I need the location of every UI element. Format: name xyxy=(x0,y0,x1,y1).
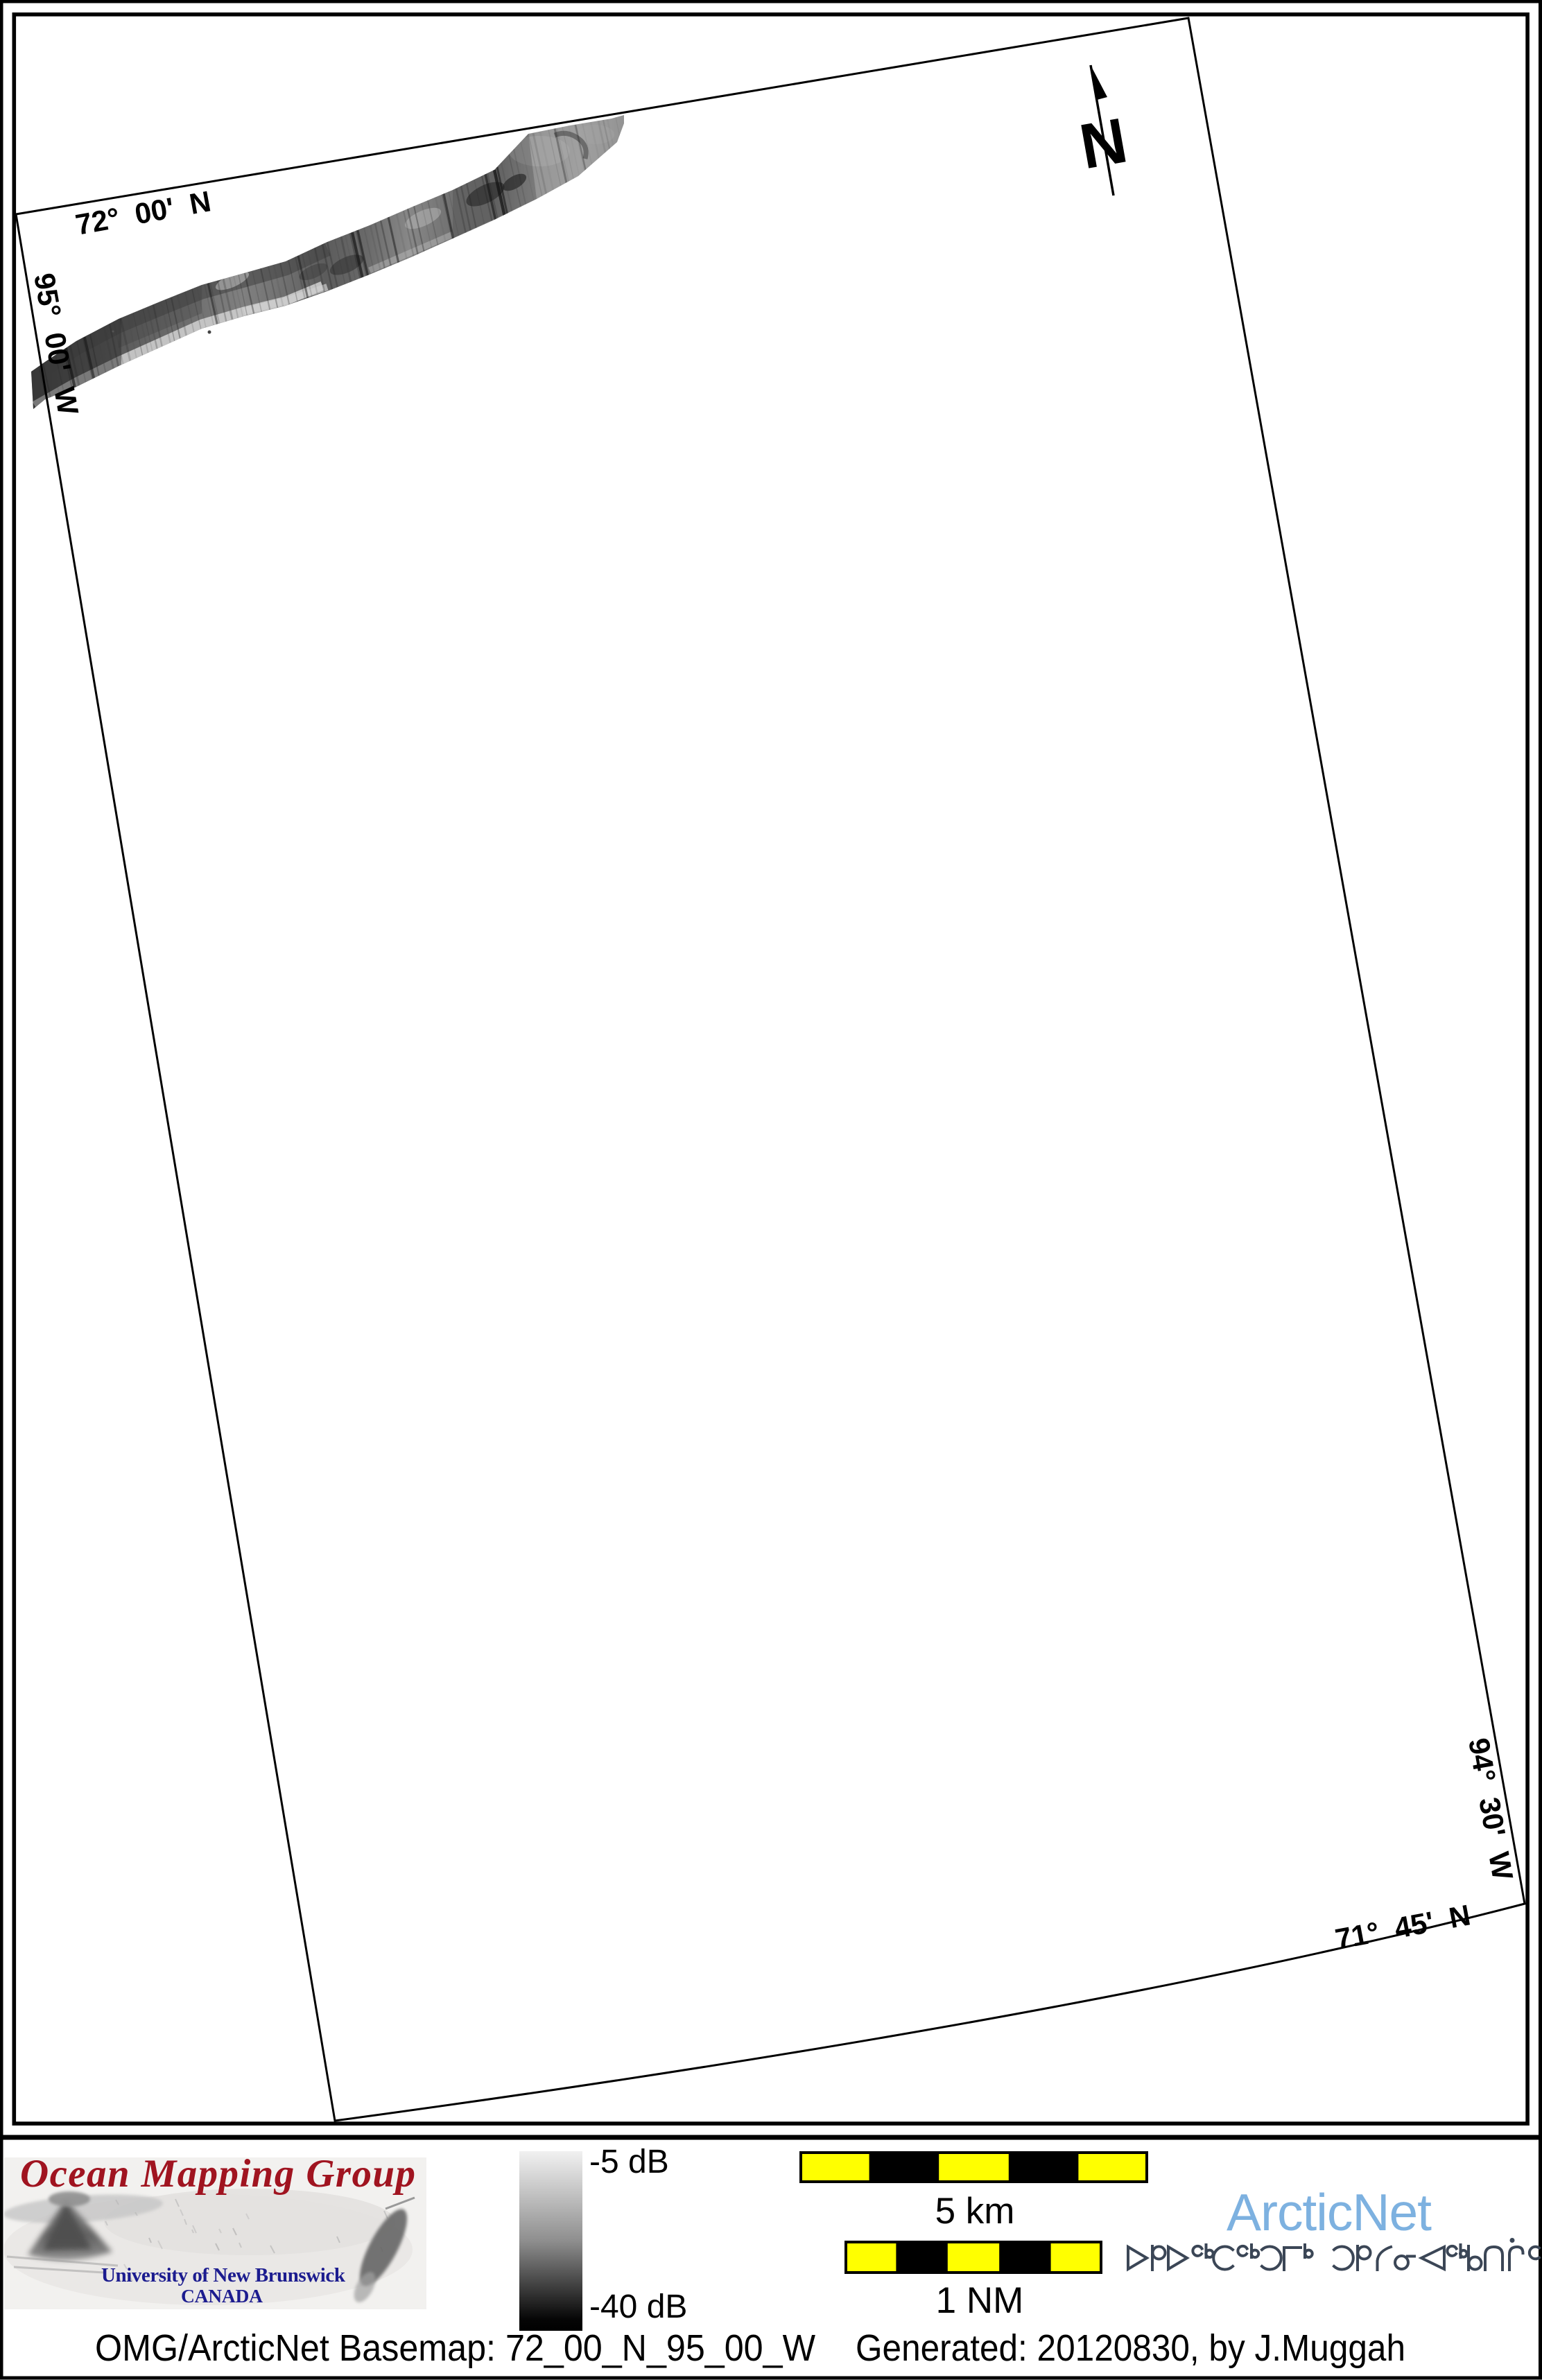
svg-text:ArcticNet: ArcticNet xyxy=(1227,2183,1432,2241)
svg-text:CANADA: CANADA xyxy=(181,2285,263,2307)
svg-text:1 NM: 1 NM xyxy=(936,2280,1024,2321)
svg-text:-5 dB: -5 dB xyxy=(589,2144,669,2180)
svg-text:-40 dB: -40 dB xyxy=(589,2288,687,2325)
svg-text:OMG/ArcticNet Basemap: 72_00_N: OMG/ArcticNet Basemap: 72_00_N_95_00_W xyxy=(95,2327,815,2369)
svg-text:5 km: 5 km xyxy=(935,2191,1015,2232)
svg-text:Ocean Mapping Group: Ocean Mapping Group xyxy=(20,2152,415,2196)
svg-text:Generated: 20120830, by J.Mugg: Generated: 20120830, by J.Muggah xyxy=(856,2327,1405,2369)
svg-text:University of New Brunswick: University of New Brunswick xyxy=(101,2264,346,2286)
